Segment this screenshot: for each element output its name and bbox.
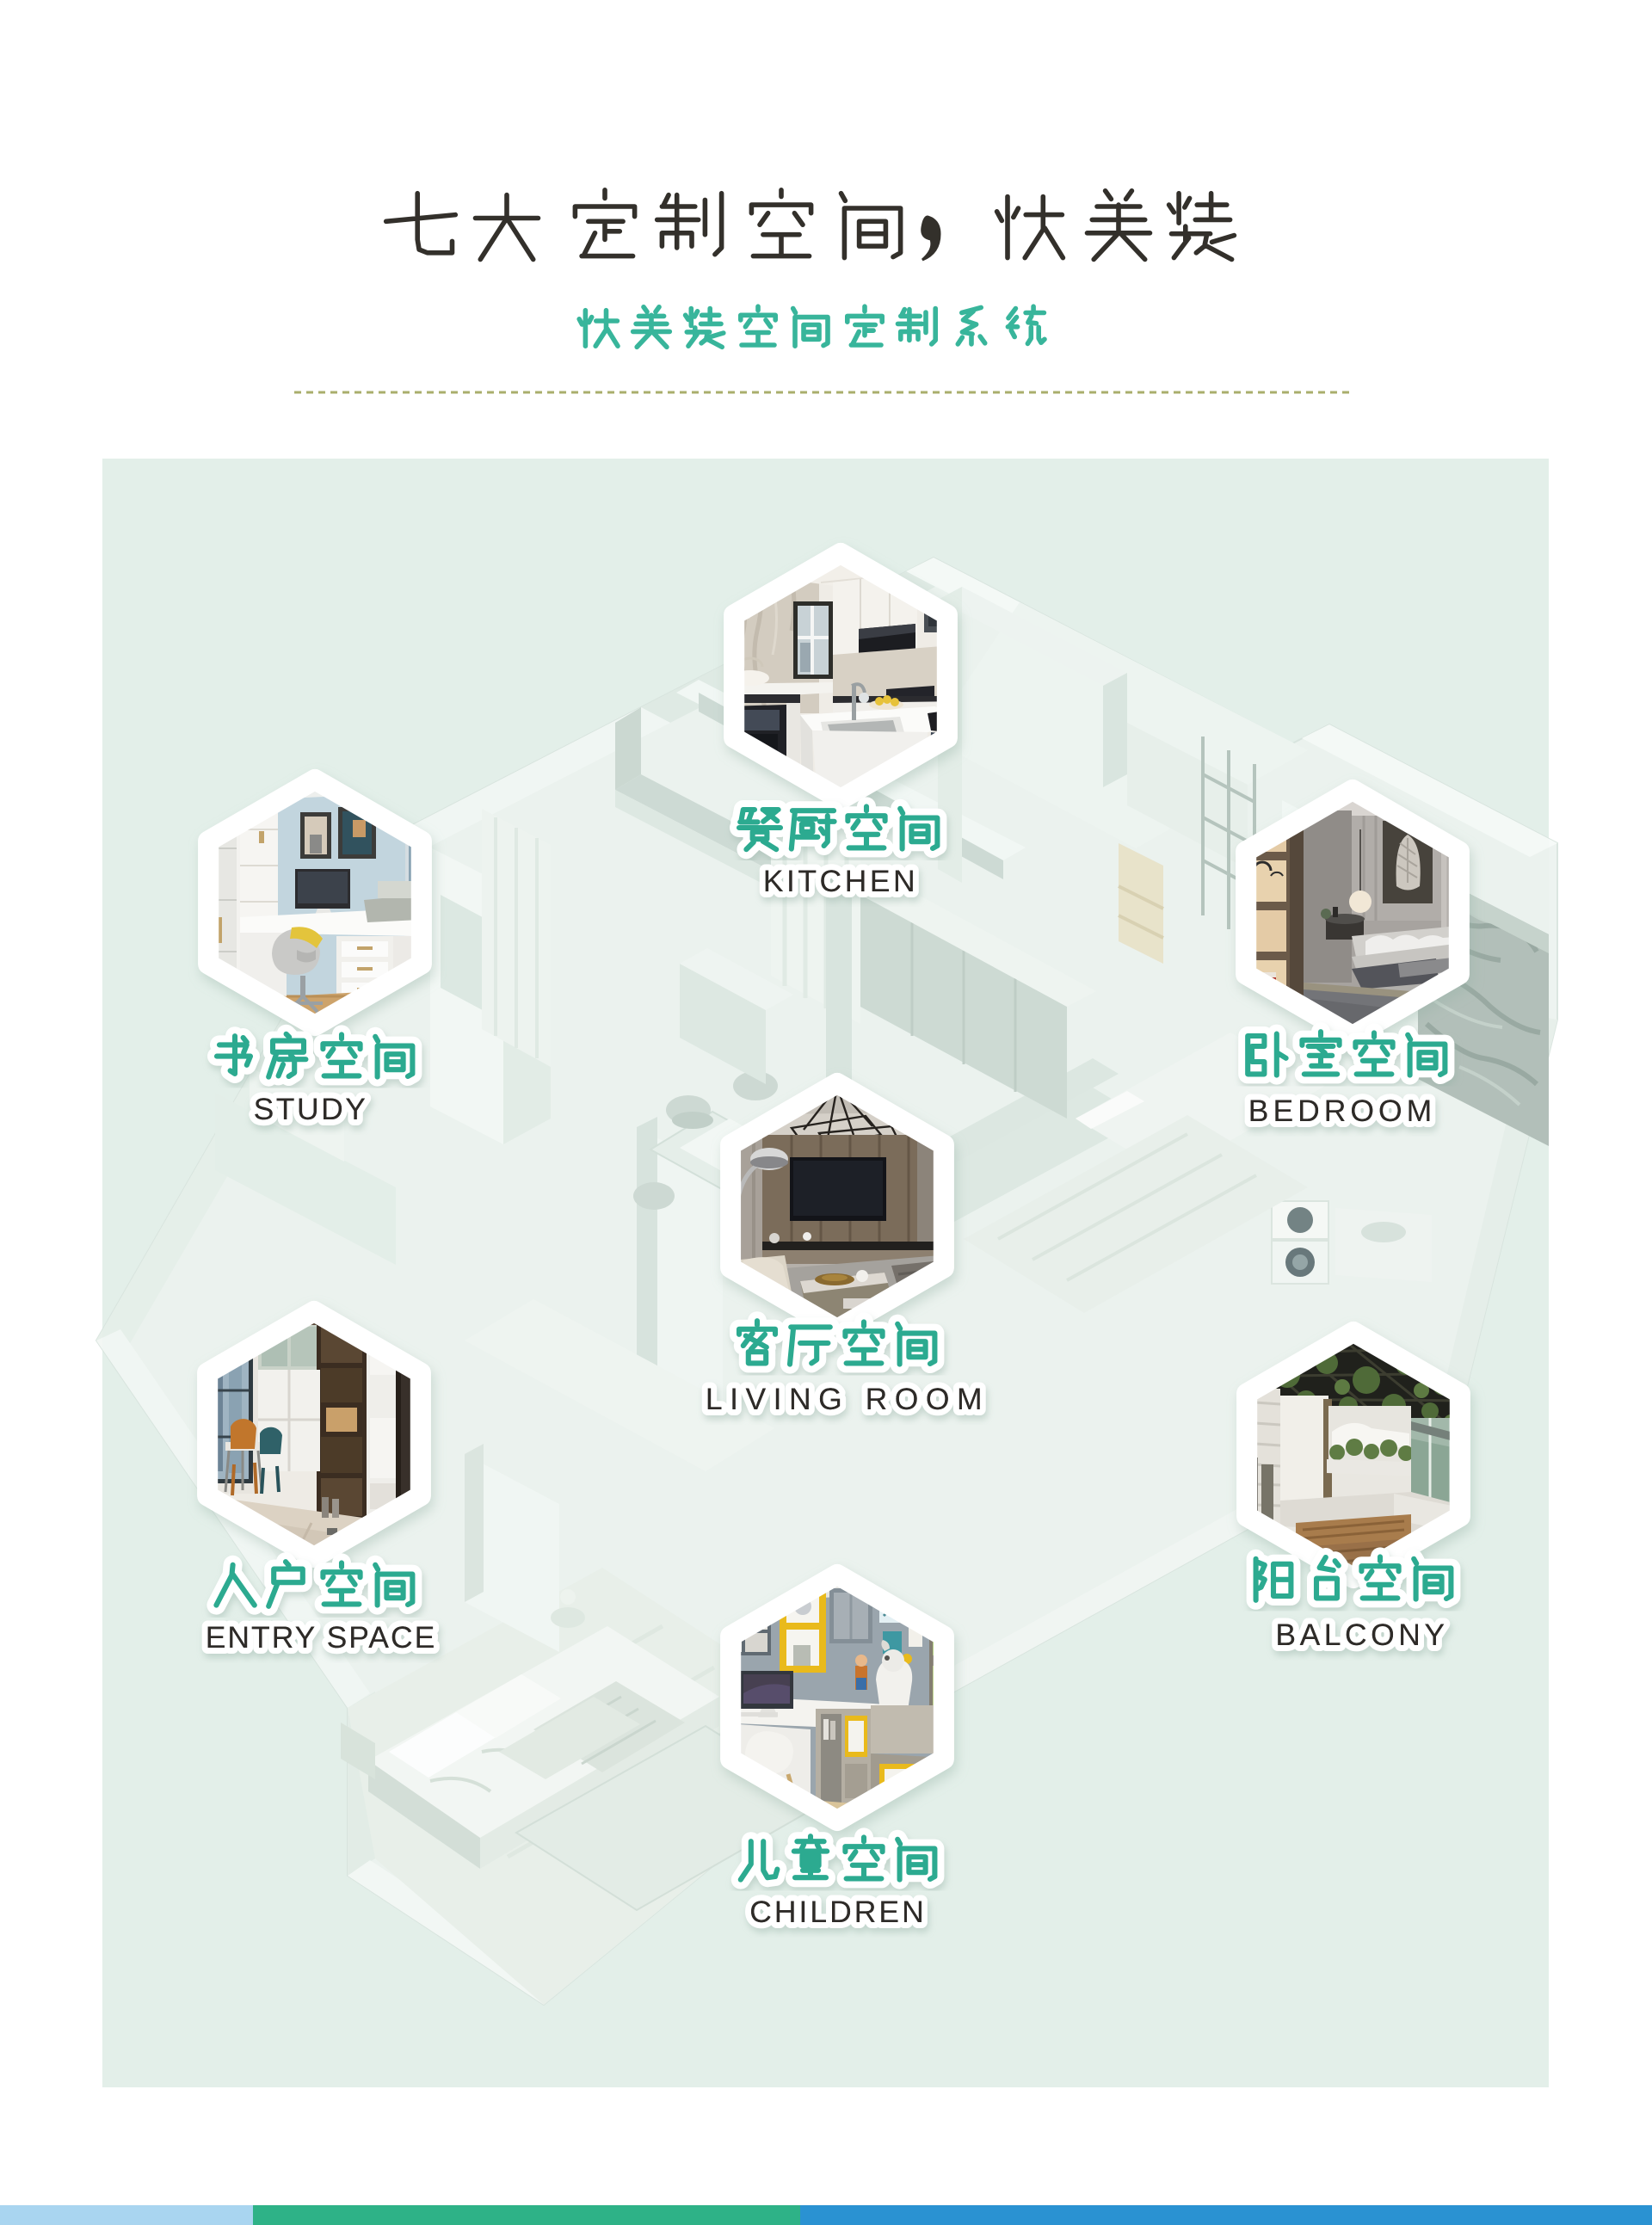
svg-text:BEDROOM: BEDROOM [1248,1094,1436,1128]
svg-text:ENTRY SPACE: ENTRY SPACE [206,1620,437,1655]
svg-text:LIVING ROOM: LIVING ROOM [706,1382,989,1416]
svg-text:BALCONY: BALCONY [1275,1618,1448,1652]
svg-text:STUDY: STUDY [254,1092,368,1126]
svg-text:CHILDREN: CHILDREN [749,1895,926,1929]
svg-text:KITCHEN: KITCHEN [763,864,918,898]
